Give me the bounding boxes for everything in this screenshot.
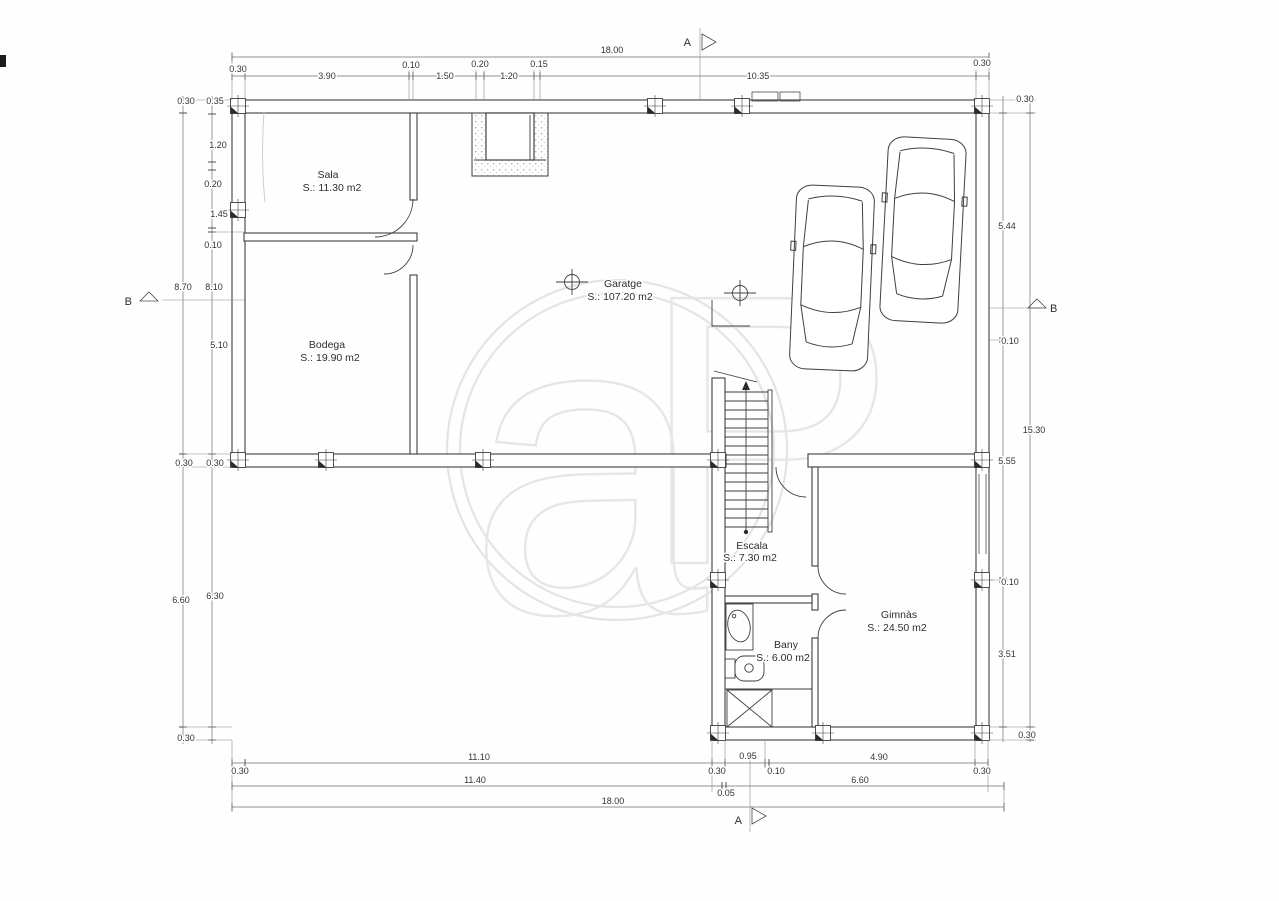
- dim-label: 1.45: [210, 209, 228, 219]
- room-area-escala: S.: 7.30 m2: [723, 552, 777, 564]
- dim-label: 0.20: [471, 59, 489, 69]
- dim-label: 0.10: [204, 240, 222, 250]
- floor-plan-canvas: a P: [0, 0, 1279, 901]
- dim-label: 8.70: [174, 282, 192, 292]
- dim-bottom-total: 18.00: [602, 796, 625, 806]
- dim-label: 6.60: [172, 595, 190, 605]
- dim-label: 0.30: [175, 458, 193, 468]
- dim-label: 0.10: [1001, 577, 1019, 587]
- dim-label: 0.30: [229, 64, 247, 74]
- dim-label: 0.95: [739, 751, 757, 761]
- floor-plan-page: a P: [0, 0, 1279, 901]
- room-label-sala: Sala: [317, 169, 338, 181]
- room-label-escala: Escala: [736, 540, 768, 552]
- car-right: [876, 136, 971, 324]
- room-area-bodega: S.: 19.90 m2: [300, 352, 360, 364]
- dim-label: 0.30: [973, 58, 991, 68]
- fireplace: [472, 113, 548, 176]
- dim-label: 0.05: [717, 788, 735, 798]
- dim-label: 8.10: [205, 282, 223, 292]
- scan-artifacts: [0, 55, 265, 202]
- dim-label: 11.10: [468, 752, 490, 762]
- dim-label: 5.55: [998, 456, 1016, 466]
- section-b-right: B: [1050, 303, 1057, 315]
- dim-label: 4.90: [870, 752, 888, 762]
- dim-top-total: 18.00: [601, 45, 624, 55]
- dim-label: 3.51: [998, 649, 1016, 659]
- dim-label: 10.35: [747, 71, 770, 81]
- dim-label: 0.10: [402, 60, 420, 70]
- dim-label: 1.20: [209, 140, 227, 150]
- dim-label: 1.20: [500, 71, 518, 81]
- dim-label: 0.30: [231, 766, 249, 776]
- dim-label: 6.60: [851, 775, 869, 785]
- dim-label: 0.20: [204, 179, 222, 189]
- room-label-gimnas: Gimnàs: [881, 609, 917, 621]
- dim-label: 0.30: [1018, 730, 1036, 740]
- room-label-garatge: Garatge: [604, 278, 642, 290]
- dim-label: 5.44: [998, 221, 1016, 231]
- room-area-garatge: S.: 107.20 m2: [587, 291, 653, 303]
- room-area-sala: S.: 11.30 m2: [303, 182, 362, 194]
- dim-label: 0.30: [177, 96, 195, 106]
- dim-label: 1.50: [436, 71, 454, 81]
- dim-label: 0.30: [708, 766, 726, 776]
- dim-label: 11.40: [464, 775, 486, 785]
- section-a-top: A: [684, 37, 692, 49]
- dim-label: 3.90: [318, 71, 336, 81]
- dim-label: 0.30: [177, 733, 195, 743]
- dim-label: 0.30: [1016, 94, 1034, 104]
- dim-label: 0.15: [530, 59, 548, 69]
- section-b-left: B: [125, 296, 132, 308]
- room-label-bodega: Bodega: [309, 339, 345, 351]
- room-label-bany: Bany: [774, 639, 799, 651]
- dim-label: 5.10: [210, 340, 228, 350]
- room-area-gimnas: S.: 24.50 m2: [867, 622, 927, 634]
- car-left: [786, 184, 879, 372]
- dim-label: 0.30: [206, 458, 224, 468]
- dim-label: 0.10: [1001, 336, 1019, 346]
- dim-label: 0.30: [973, 766, 991, 776]
- section-a-bottom: A: [735, 815, 743, 827]
- dim-label: 15.30: [1023, 425, 1046, 435]
- dim-label: 6.30: [206, 591, 224, 601]
- room-area-bany: S.: 6.00 m2: [756, 652, 810, 664]
- dim-label: 0.10: [767, 766, 785, 776]
- dim-label: 0.35: [206, 96, 224, 106]
